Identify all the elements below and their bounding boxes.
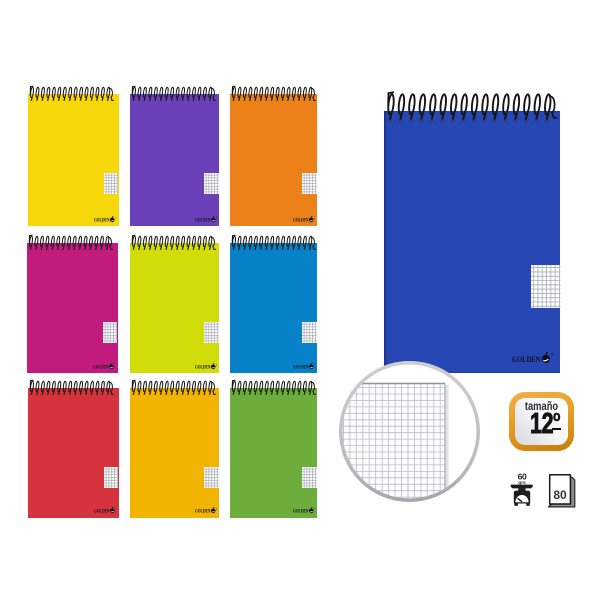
svg-text:®: ® [216,507,217,511]
svg-text:®: ® [551,352,554,357]
svg-text:®: ® [314,216,315,220]
svg-text:®: ® [115,507,116,511]
svg-text:GOLDEN: GOLDEN [195,365,211,369]
svg-text:GOLDEN: GOLDEN [94,218,110,222]
svg-text:80: 80 [553,488,567,502]
svg-text:GOLDEN: GOLDEN [293,365,309,369]
svg-text:®: ® [216,363,217,367]
svg-text:GOLDEN: GOLDEN [195,218,211,222]
svg-text:®: ® [114,363,115,367]
svg-text:®: ® [115,216,116,220]
svg-text:GOLDEN: GOLDEN [93,365,109,369]
svg-text:®: ® [216,216,217,220]
svg-text:®: ® [314,363,315,367]
svg-text:GOLDEN: GOLDEN [195,510,211,514]
svg-text:GOLDEN: GOLDEN [293,218,309,222]
svg-text:®: ® [314,507,315,511]
svg-text:GOLDEN: GOLDEN [94,510,110,514]
svg-text:GOLDEN: GOLDEN [512,354,541,364]
svg-text:GOLDEN: GOLDEN [293,510,309,514]
